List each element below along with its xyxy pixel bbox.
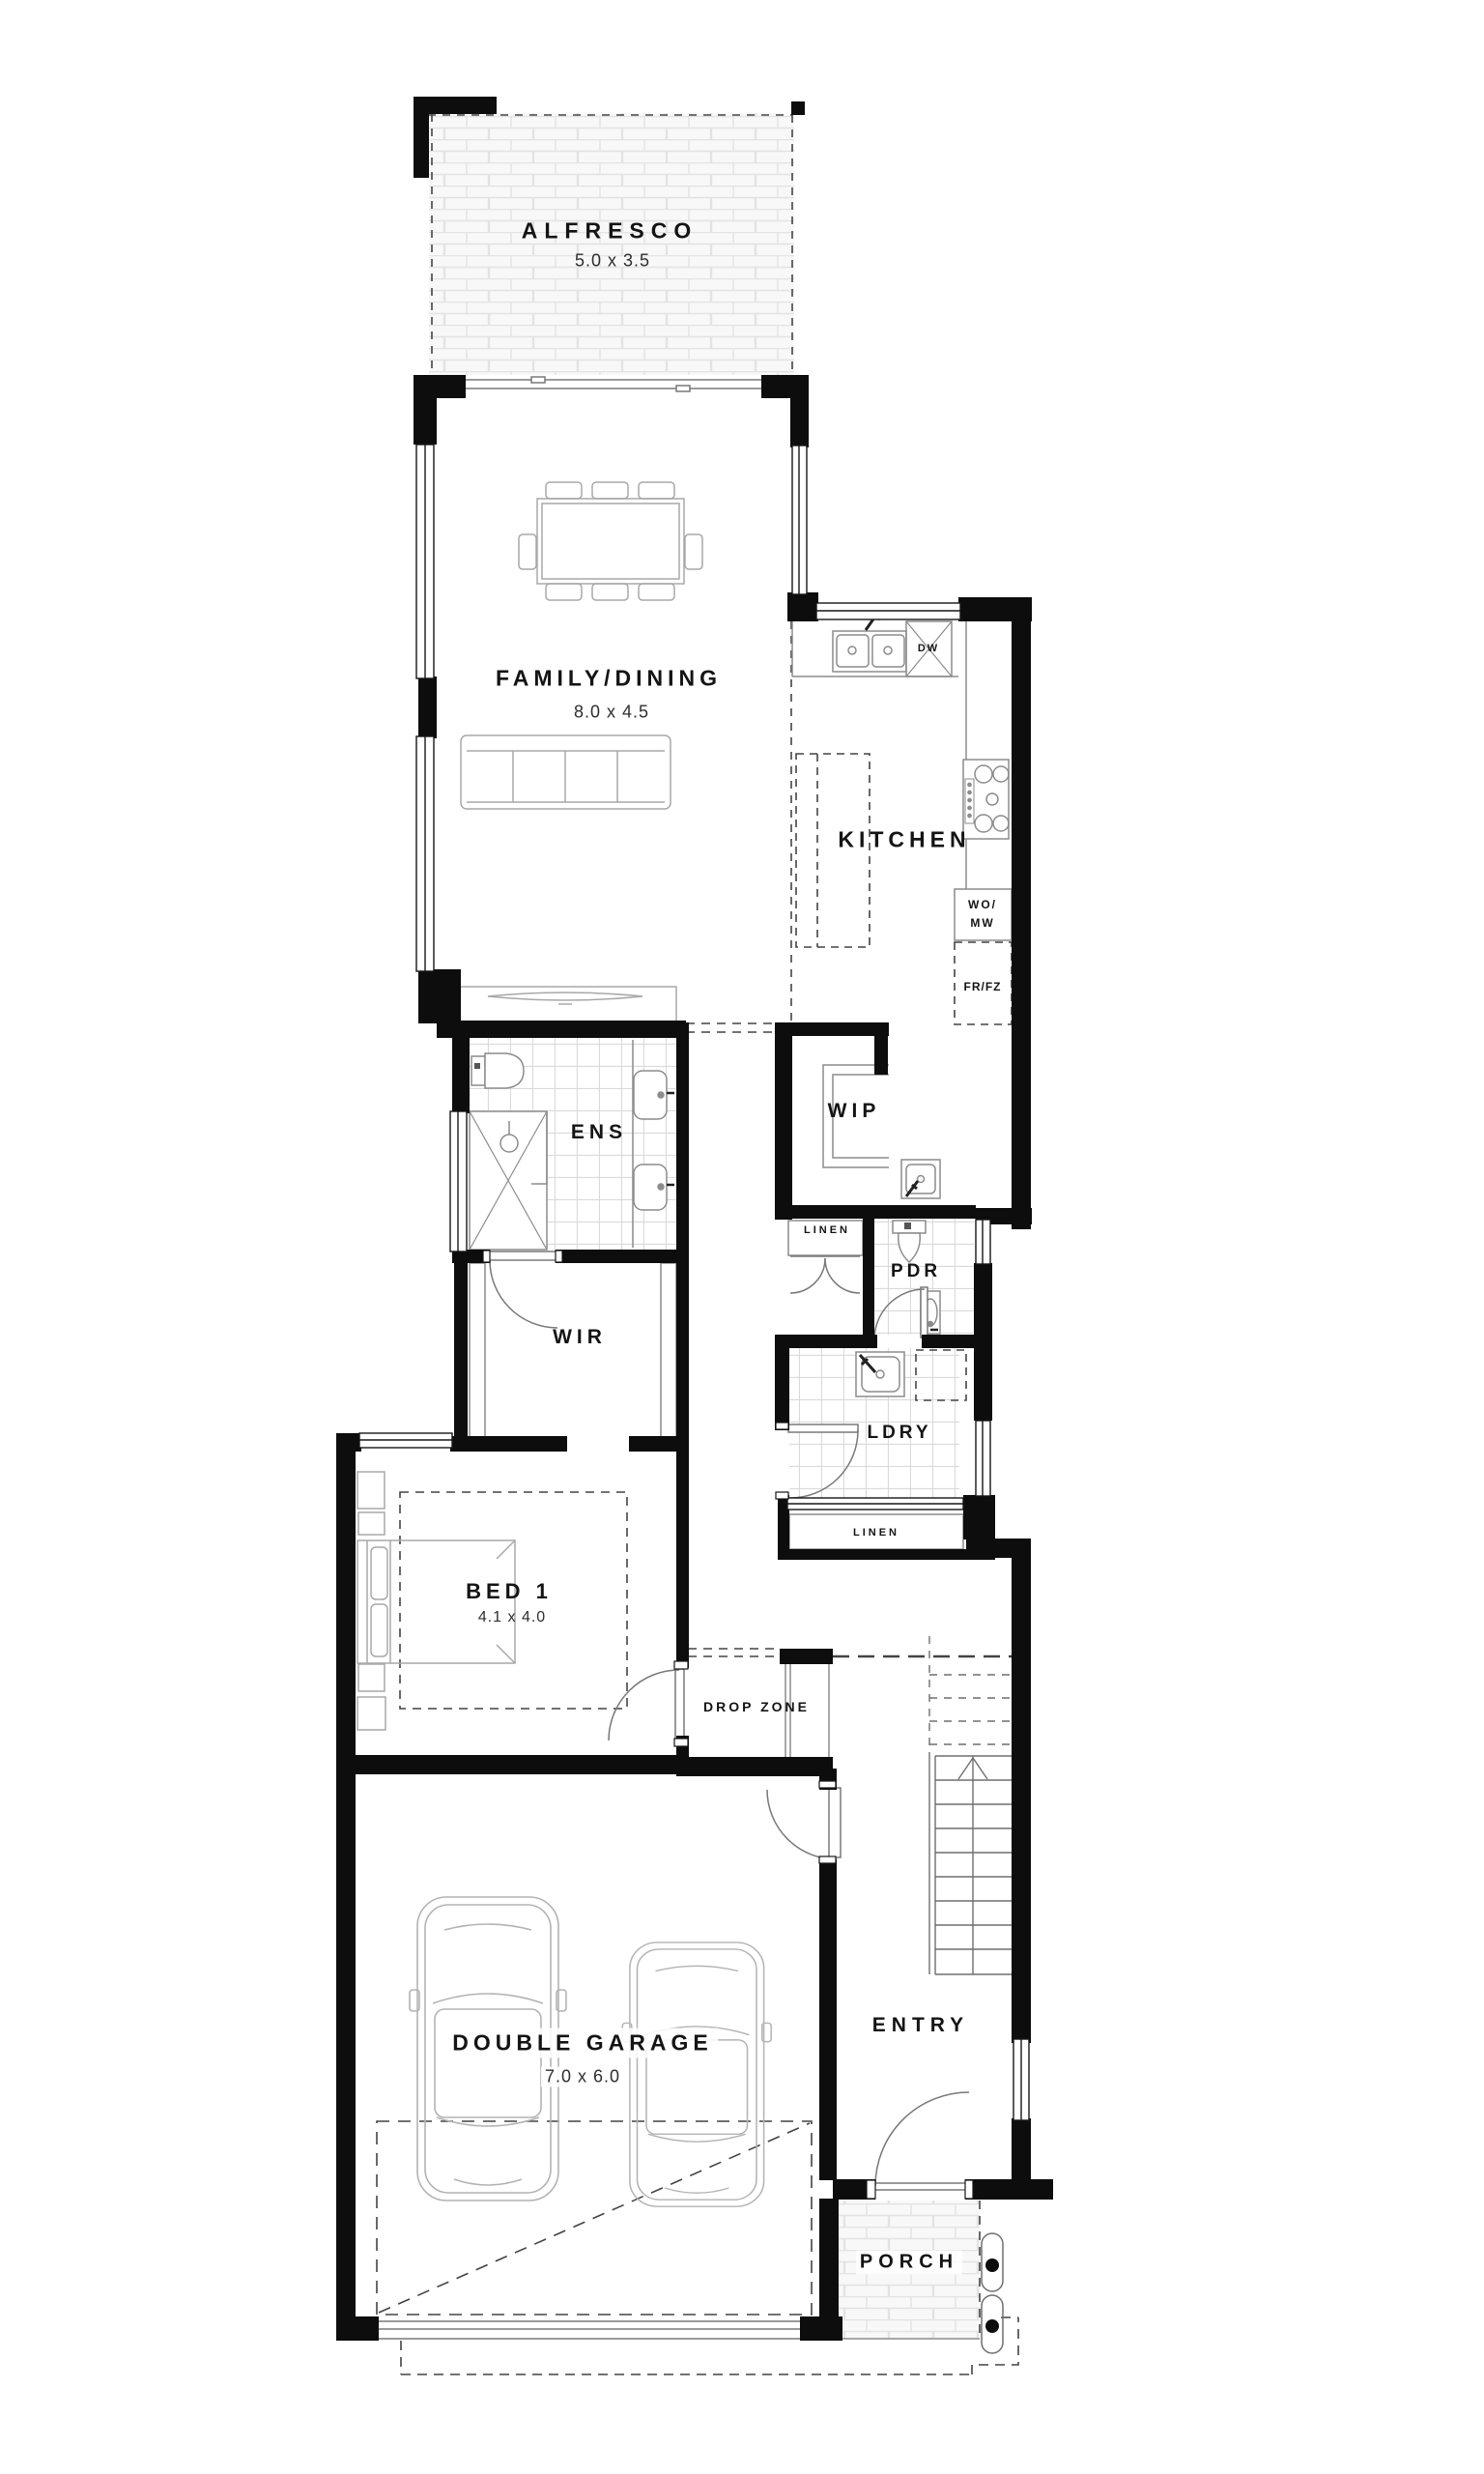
ldry-label: LDRY [867, 1423, 931, 1444]
wip-sink [901, 1160, 940, 1198]
kitchen-label: KITCHEN [838, 827, 970, 853]
double-garage-label: DOUBLE GARAGE [446, 2028, 718, 2058]
microwave-label: MW [970, 916, 994, 930]
pdr-label: PDR [891, 1261, 941, 1282]
ens-label: ENS [571, 1121, 627, 1144]
dropzone-overhead-dashed [688, 1649, 778, 1656]
linen-hall-label: LINEN [804, 1224, 850, 1236]
bed1-dims: 4.1 x 4.0 [478, 1609, 546, 1626]
family-window-right [792, 446, 807, 594]
dishwasher-label: DW [918, 643, 939, 654]
family-dining-label: FAMILY/DINING [496, 666, 722, 692]
garage-vehicle-door [379, 2321, 800, 2339]
pdr-window [976, 1220, 990, 1264]
fridge-freezer-label: FR/FZ [964, 980, 1002, 993]
alfresco-label: ALFRESCO [522, 218, 699, 245]
bedroom-cabinet [357, 1697, 385, 1730]
family-dining-dims: 8.0 x 4.5 [574, 703, 649, 723]
entry-sidelight-window [1013, 2039, 1029, 2120]
ens-window [450, 1111, 467, 1251]
bed1-label: BED 1 [466, 1579, 553, 1604]
bedside-cabinet [357, 1472, 385, 1509]
tv-unit [451, 987, 676, 1021]
bedside-table-bottom [358, 1664, 385, 1691]
family-window-lower [416, 736, 434, 971]
linen-laundry-label: LINEN [853, 1527, 899, 1539]
floor-plan-page: ALFRESCO 5.0 x 3.5 FAMILY/DINING 8.0 x 4… [0, 0, 1484, 2474]
linen-hall-doors [790, 1256, 860, 1293]
floor-plan-drawing [0, 0, 1484, 2474]
wall-oven-label: WO/ [968, 898, 997, 911]
double-garage-dims: 7.0 x 6.0 [541, 2067, 624, 2087]
walls [336, 97, 1053, 2341]
wir-shelves [470, 1263, 676, 1441]
front-door [875, 2092, 969, 2190]
alfresco-dims: 5.0 x 3.5 [575, 251, 650, 272]
ens-shower [470, 1111, 547, 1250]
wir-label: WIR [553, 1326, 607, 1349]
ldry-side-window [976, 1421, 990, 1496]
porch-columns [982, 2233, 1003, 2353]
sofa [461, 735, 671, 809]
ens-toilet [471, 1053, 524, 1088]
alfresco-sliding-door [464, 377, 761, 391]
entry-label: ENTRY [872, 2014, 969, 2037]
bedside-table-top [358, 1512, 385, 1535]
bed1-door [609, 1669, 684, 1740]
car-right [622, 1942, 771, 2206]
dining-table-set [519, 482, 702, 600]
ldry-rear-window [787, 1498, 963, 1510]
porch-label: PORCH [856, 2251, 962, 2275]
stair-dashed-treads [929, 1675, 1012, 1744]
wip-label: WIP [828, 1100, 881, 1123]
ens-door [488, 1251, 557, 1328]
alfresco-paving [429, 113, 794, 375]
family-window-upper [416, 445, 434, 678]
family-passage-dashed [686, 1023, 773, 1032]
ldry-trough [856, 1352, 904, 1396]
staircase [929, 1636, 1012, 1974]
drop-zone-label: DROP ZONE [703, 1699, 810, 1714]
wall-oven-microwave-box [955, 889, 1012, 940]
bed1-window [359, 1433, 452, 1448]
garage-diagonal-dashed [379, 2123, 810, 2313]
garage-internal-door [767, 1788, 841, 1859]
kitchen-window [816, 603, 960, 619]
